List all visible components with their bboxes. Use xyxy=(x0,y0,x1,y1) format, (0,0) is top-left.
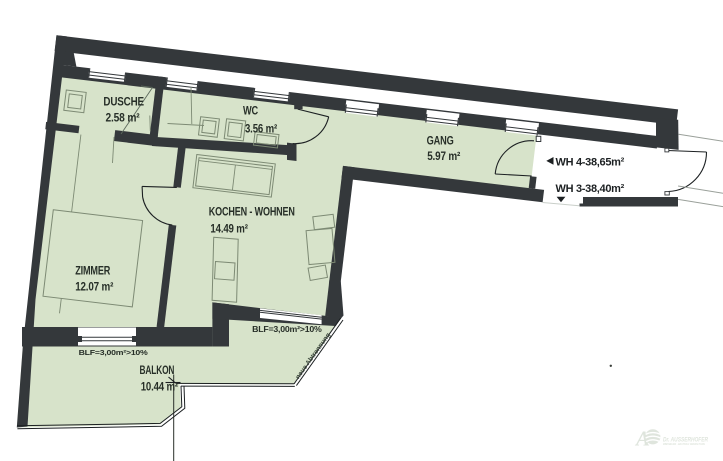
svg-text:GANG: GANG xyxy=(427,133,454,147)
svg-text:BALKON: BALKON xyxy=(140,363,175,377)
svg-text:WH 3-38,40m²: WH 3-38,40m² xyxy=(556,183,625,195)
svg-text:IMMOBILIEN - BAUTRAG VERWALTUN: IMMOBILIEN - BAUTRAG VERWALTUNG xyxy=(663,442,705,446)
svg-text:WH 4-38,65m²: WH 4-38,65m² xyxy=(556,156,625,168)
svg-text:5.97 m²: 5.97 m² xyxy=(427,149,460,163)
svg-text:14.49 m²: 14.49 m² xyxy=(210,221,248,235)
svg-text:BLF=3,00m²>10%: BLF=3,00m²>10% xyxy=(252,325,322,334)
svg-text:12.07 m²: 12.07 m² xyxy=(75,280,113,294)
svg-text:3.56 m²: 3.56 m² xyxy=(245,121,277,135)
svg-text:KOCHEN - WOHNEN: KOCHEN - WOHNEN xyxy=(209,205,295,219)
svg-text:10.44 m²: 10.44 m² xyxy=(141,379,178,393)
svg-text:2.58 m²: 2.58 m² xyxy=(106,110,140,124)
svg-text:BLF=3,00m²>10%: BLF=3,00m²>10% xyxy=(79,348,149,357)
svg-text:ZIMMER: ZIMMER xyxy=(75,263,110,277)
svg-text:WC: WC xyxy=(243,104,258,118)
svg-text:DUSCHE: DUSCHE xyxy=(103,95,144,109)
